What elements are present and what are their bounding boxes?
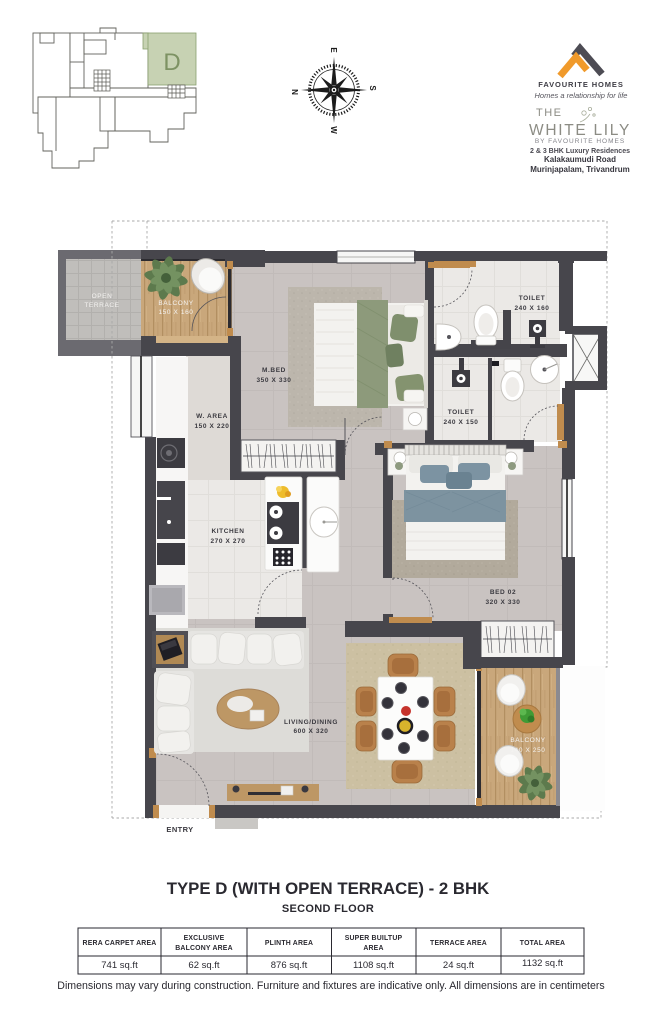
svg-text:240 X 160: 240 X 160 [514,305,549,312]
svg-text:1132 sq.ft: 1132 sq.ft [522,958,563,969]
svg-text:741 sq.ft: 741 sq.ft [101,960,138,971]
svg-text:BED 02: BED 02 [490,589,516,596]
svg-text:Dimensions may vary during con: Dimensions may vary during construction.… [57,980,604,992]
svg-text:D: D [163,49,180,76]
svg-text:600 X 320: 600 X 320 [293,728,328,735]
svg-text:1108 sq.ft: 1108 sq.ft [353,960,394,971]
svg-text:150 X 160: 150 X 160 [158,309,193,316]
svg-text:SUPER BUILTUP: SUPER BUILTUP [345,935,403,942]
svg-text:240 X 150: 240 X 150 [443,419,478,426]
svg-text:350 X 330: 350 X 330 [256,377,291,384]
svg-text:150 X 220: 150 X 220 [194,423,229,430]
svg-text:TOILET: TOILET [519,295,546,302]
svg-text:876 sq.ft: 876 sq.ft [271,960,308,971]
svg-text:FAVOURITE HOMES: FAVOURITE HOMES [538,80,623,89]
svg-text:W. AREA: W. AREA [196,413,228,420]
svg-text:BY FAVOURITE HOMES: BY FAVOURITE HOMES [535,138,625,145]
svg-text:S: S [368,85,377,91]
svg-text:RERA CARPET AREA: RERA CARPET AREA [83,940,157,947]
svg-text:KITCHEN: KITCHEN [211,528,244,535]
svg-text:320 X 330: 320 X 330 [485,599,520,606]
svg-text:ENTRY: ENTRY [166,825,193,834]
svg-text:AREA: AREA [363,945,383,952]
svg-text:PLINTH AREA: PLINTH AREA [265,940,313,947]
svg-text:LIVING/DINING: LIVING/DINING [284,719,338,726]
svg-text:140 X 250: 140 X 250 [510,747,545,754]
svg-text:THE: THE [536,107,563,119]
svg-text:Murinjapalam, Trivandrum: Murinjapalam, Trivandrum [530,165,630,174]
svg-text:BALCONY: BALCONY [158,300,193,307]
svg-text:BALCONY: BALCONY [510,737,545,744]
svg-text:SECOND FLOOR: SECOND FLOOR [282,903,374,915]
svg-text:Kalakaumudi Road: Kalakaumudi Road [544,155,616,164]
svg-text:TERRACE AREA: TERRACE AREA [430,940,487,947]
svg-text:62 sq.ft: 62 sq.ft [188,960,220,971]
svg-text:TOTAL AREA: TOTAL AREA [520,940,565,947]
svg-text:WHITE LILY: WHITE LILY [529,122,631,139]
svg-text:Homes a relationship for life: Homes a relationship for life [535,91,628,100]
svg-text:OPEN: OPEN [92,293,113,300]
svg-text:2 & 3 BHK Luxury Residences: 2 & 3 BHK Luxury Residences [530,148,630,155]
svg-text:TOILET: TOILET [448,409,475,416]
svg-text:N: N [290,89,299,95]
svg-text:270 X 270: 270 X 270 [210,538,245,545]
svg-text:TERRACE: TERRACE [84,302,119,309]
svg-text:EXCLUSIVE: EXCLUSIVE [184,935,225,942]
svg-text:E: E [329,47,338,53]
svg-text:W: W [329,126,338,134]
svg-text:TYPE D (WITH OPEN TERRACE) - 2: TYPE D (WITH OPEN TERRACE) - 2 BHK [167,879,490,898]
svg-text:24 sq.ft: 24 sq.ft [443,960,475,971]
svg-text:BALCONY AREA: BALCONY AREA [175,945,233,952]
svg-text:M.BED: M.BED [262,367,286,374]
